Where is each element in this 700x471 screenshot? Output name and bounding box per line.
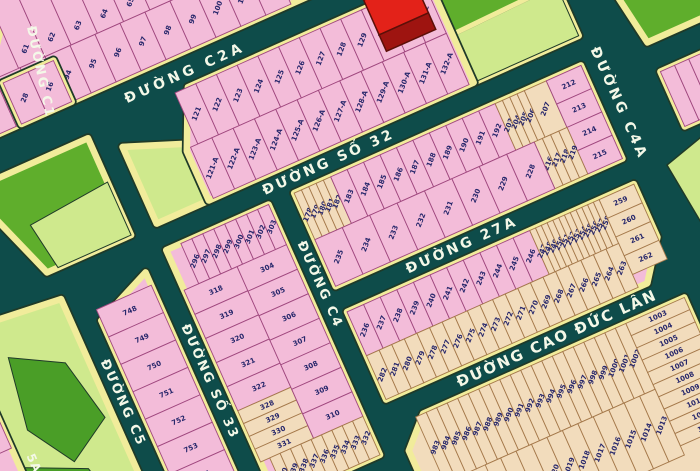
- map-viewport[interactable]: 6162636465666768919293949596979899100101…: [0, 0, 700, 471]
- map-canvas[interactable]: 6162636465666768919293949596979899100101…: [0, 0, 700, 471]
